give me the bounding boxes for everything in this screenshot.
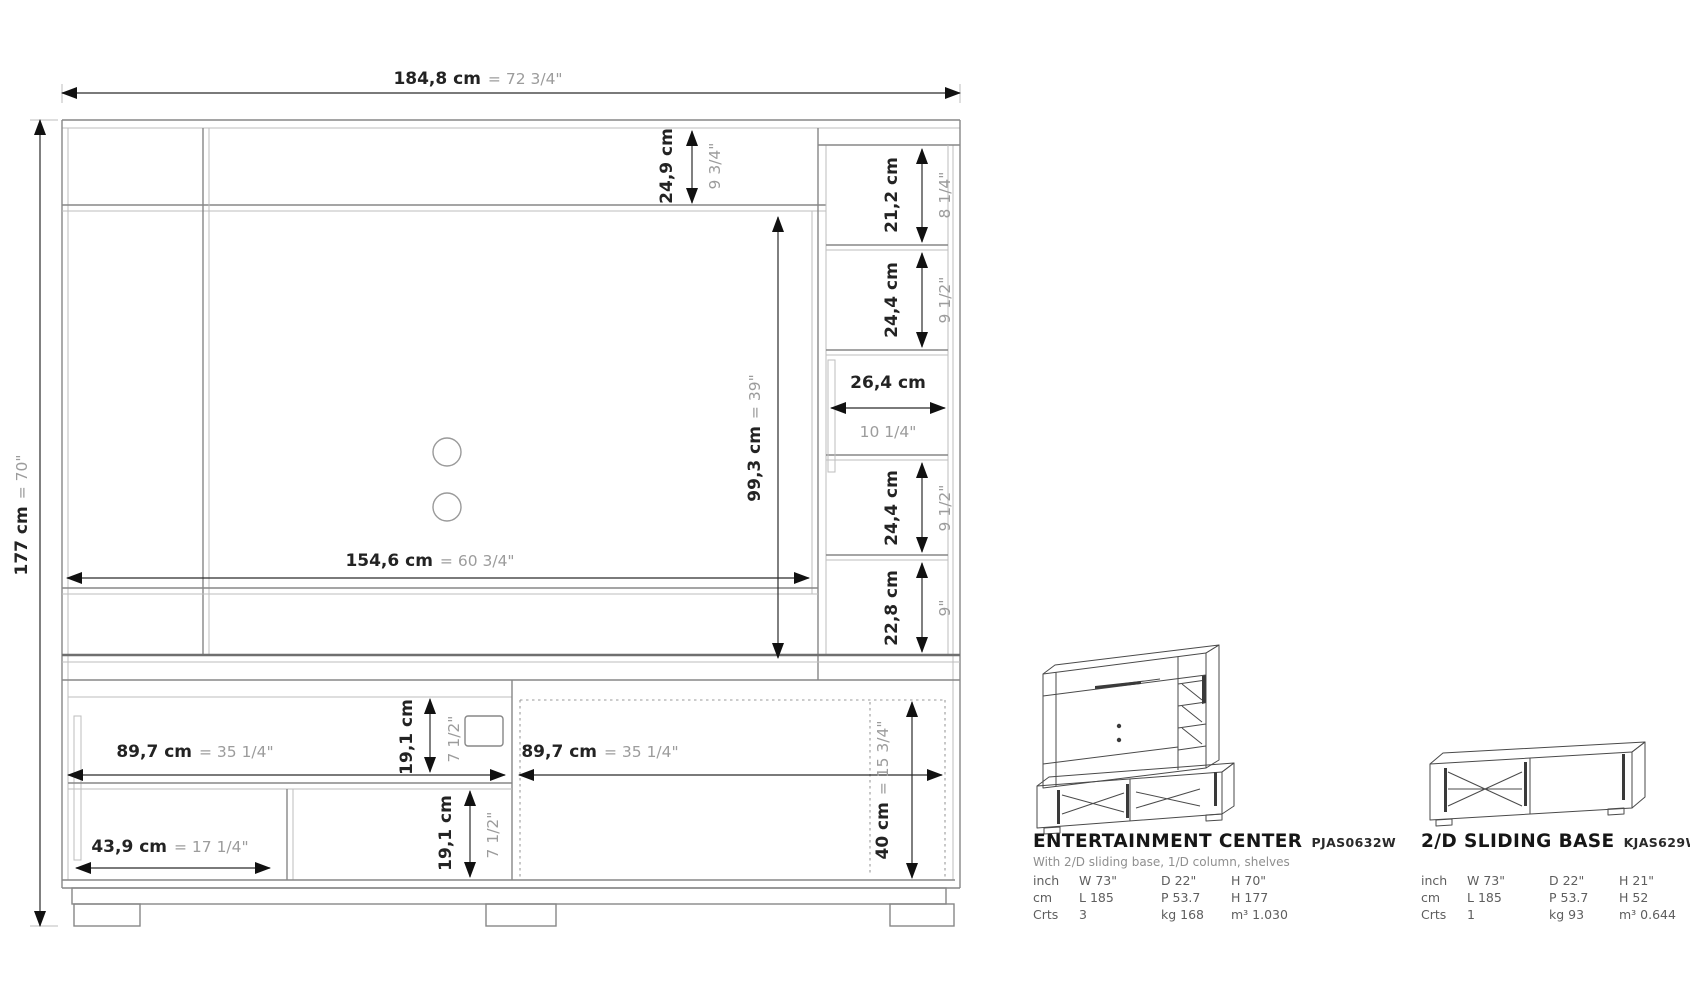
spec-cell: m³ 0.644 bbox=[1619, 907, 1690, 922]
dim-opening-width: 154,6 cm= 60 3/4" bbox=[345, 551, 514, 571]
spec-cell: kg 168 bbox=[1161, 907, 1231, 922]
spec-cell: W 73" bbox=[1467, 873, 1549, 888]
spec-cell: W 73" bbox=[1079, 873, 1161, 888]
product-entertainment-center: ENTERTAINMENT CENTER PJAS0632W With 2/D … bbox=[1033, 831, 1393, 922]
spec-cell: P 53.7 bbox=[1549, 890, 1619, 905]
product-sliding-base: 2/D SLIDING BASE KJAS629W inch W 73" D 2… bbox=[1421, 831, 1690, 922]
dim-base-upper-in: 7 1/2" bbox=[445, 716, 463, 763]
spec-cell: 3 bbox=[1079, 907, 1161, 922]
product-title: 2/D SLIDING BASE KJAS629W bbox=[1421, 831, 1690, 852]
dim-opening-height: 99,3 cm= 39" bbox=[745, 374, 765, 501]
dim-door-left: 89,7 cm= 35 1/4" bbox=[116, 742, 273, 762]
dim-overall-height: 177 cm= 70" bbox=[12, 455, 32, 576]
spec-cell: inch bbox=[1421, 873, 1467, 888]
dim-base-upper-cm: 19,1 cm bbox=[397, 699, 417, 775]
dimension-labels: 184,8 cm= 72 3/4" 177 cm= 70" 24,9 cm 9 … bbox=[12, 69, 954, 871]
cable-hole-top bbox=[433, 438, 461, 466]
dim-top-shelf-in: 9 3/4" bbox=[706, 143, 724, 190]
dim-shelf-upper-in: 9 1/2" bbox=[936, 277, 954, 324]
entertainment-center-sketch bbox=[1037, 645, 1234, 834]
dim-overall-width: 184,8 cm= 72 3/4" bbox=[393, 69, 562, 89]
dim-shelf-bottom-cm: 22,8 cm bbox=[882, 570, 902, 646]
product-title: ENTERTAINMENT CENTER PJAS0632W bbox=[1033, 831, 1393, 852]
dim-niche-width-in: 10 1/4" bbox=[860, 423, 917, 441]
spec-cell: P 53.7 bbox=[1161, 890, 1231, 905]
dim-top-shelf-cm: 24,9 cm bbox=[657, 128, 677, 204]
product-description: With 2/D sliding base, 1/D column, shelv… bbox=[1033, 855, 1393, 872]
product-code: PJAS0632W bbox=[1311, 835, 1396, 850]
dim-shelf-bottom-in: 9" bbox=[936, 600, 954, 617]
spec-cell: L 185 bbox=[1467, 890, 1549, 905]
door-edge-strip bbox=[74, 716, 81, 860]
spec-cell: D 22" bbox=[1161, 873, 1231, 888]
spec-cell: H 70" bbox=[1231, 873, 1341, 888]
dim-shelf-top-in: 8 1/4" bbox=[936, 172, 954, 219]
spec-cell: m³ 1.030 bbox=[1231, 907, 1341, 922]
base-unit bbox=[62, 655, 960, 926]
cable-holes bbox=[433, 438, 461, 521]
dim-shelf-upper-cm: 24,4 cm bbox=[882, 262, 902, 338]
spec-cell: 1 bbox=[1467, 907, 1549, 922]
dim-base-lower-in: 7 1/2" bbox=[484, 812, 502, 859]
spec-cell: H 21" bbox=[1619, 873, 1690, 888]
foot-right bbox=[890, 904, 954, 926]
dimension-lines bbox=[30, 84, 960, 926]
spec-table: inch W 73" D 22" H 70" cm L 185 P 53.7 H… bbox=[1033, 873, 1393, 922]
spec-cell: cm bbox=[1033, 890, 1079, 905]
spec-cell: cm bbox=[1421, 890, 1467, 905]
media-box bbox=[465, 716, 503, 746]
product-description bbox=[1421, 855, 1690, 872]
dim-shelf-top-cm: 21,2 cm bbox=[882, 157, 902, 233]
product-code: KJAS629W bbox=[1624, 835, 1690, 850]
plinth bbox=[72, 888, 946, 904]
cable-hole-bottom bbox=[433, 493, 461, 521]
dim-base-lower-cm: 19,1 cm bbox=[436, 795, 456, 871]
dim-shelf-lower-cm: 24,4 cm bbox=[882, 470, 902, 546]
spec-table: inch W 73" D 22" H 21" cm L 185 P 53.7 H… bbox=[1421, 873, 1690, 922]
dim-door-right: 89,7 cm= 35 1/4" bbox=[521, 742, 678, 762]
spec-cell: kg 93 bbox=[1549, 907, 1619, 922]
sliding-base-sketch bbox=[1430, 742, 1645, 826]
page: 184,8 cm= 72 3/4" 177 cm= 70" 24,9 cm 9 … bbox=[0, 0, 1690, 1006]
cabinet-outline bbox=[62, 120, 960, 888]
spec-cell: D 22" bbox=[1549, 873, 1619, 888]
spec-cell: H 52 bbox=[1619, 890, 1690, 905]
dim-base-inner: 43,9 cm= 17 1/4" bbox=[91, 837, 248, 857]
spec-cell: Crts bbox=[1033, 907, 1079, 922]
spec-cell: L 185 bbox=[1079, 890, 1161, 905]
spec-cell: inch bbox=[1033, 873, 1079, 888]
dim-shelf-lower-in: 9 1/2" bbox=[936, 485, 954, 532]
foot-middle bbox=[486, 904, 556, 926]
spec-cell: H 177 bbox=[1231, 890, 1341, 905]
dim-niche-width-cm: 26,4 cm bbox=[850, 373, 926, 393]
foot-left bbox=[74, 904, 140, 926]
product-name: ENTERTAINMENT CENTER bbox=[1033, 831, 1302, 852]
spec-cell: Crts bbox=[1421, 907, 1467, 922]
dim-base-height: 40 cm= 15 3/4" bbox=[873, 720, 893, 859]
product-name: 2/D SLIDING BASE bbox=[1421, 831, 1615, 852]
